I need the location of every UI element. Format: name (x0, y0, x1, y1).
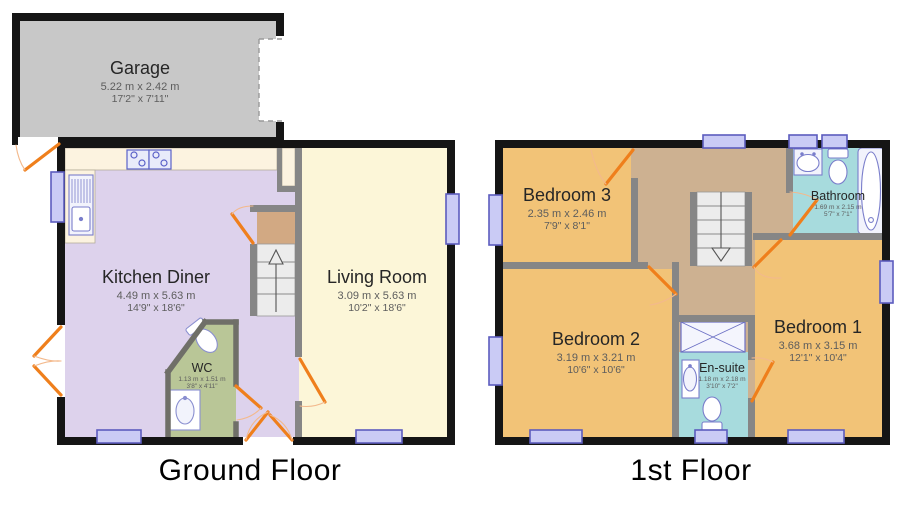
floor-title-ground: Ground Floor (159, 454, 342, 488)
garage-side-door (16, 144, 59, 170)
ensuite-sink-icon (682, 360, 699, 398)
window (489, 195, 502, 245)
hob-icon (127, 150, 171, 169)
window (822, 135, 847, 148)
floor-title-first: 1st Floor (630, 454, 751, 488)
floorplan-canvas: Garage 5.22 m x 2.42 m 17'2" x 7'11" Kit… (0, 0, 900, 511)
bathtub-icon (858, 148, 884, 234)
floorplan-drawing (0, 0, 900, 500)
first-floor-plan (489, 135, 893, 445)
ground-floor-plan (12, 13, 459, 445)
bedroom3-floor (503, 148, 631, 262)
bathroom-sink-icon (794, 149, 822, 175)
garage-floor (16, 17, 280, 141)
window (446, 194, 459, 244)
window (356, 430, 402, 443)
french-doors (34, 327, 61, 395)
wardrobe-icon (681, 322, 745, 352)
window (489, 337, 502, 385)
window (880, 261, 893, 303)
stairs-up (257, 244, 295, 316)
window (97, 430, 141, 443)
bedroom1-floor (755, 240, 882, 437)
wc-sink-icon (170, 390, 200, 430)
window (530, 430, 582, 443)
understairs-cupboard (257, 212, 295, 244)
window (695, 430, 727, 443)
bathroom-toilet-icon (828, 149, 848, 184)
stairs-down (697, 192, 745, 266)
kitchen-sink-icon (69, 175, 93, 235)
window (703, 135, 745, 148)
bedroom2-floor (503, 269, 672, 437)
garage-door (259, 39, 283, 121)
window (788, 430, 844, 443)
window (789, 135, 817, 148)
window (51, 172, 64, 222)
ensuite-toilet-icon (702, 397, 722, 431)
